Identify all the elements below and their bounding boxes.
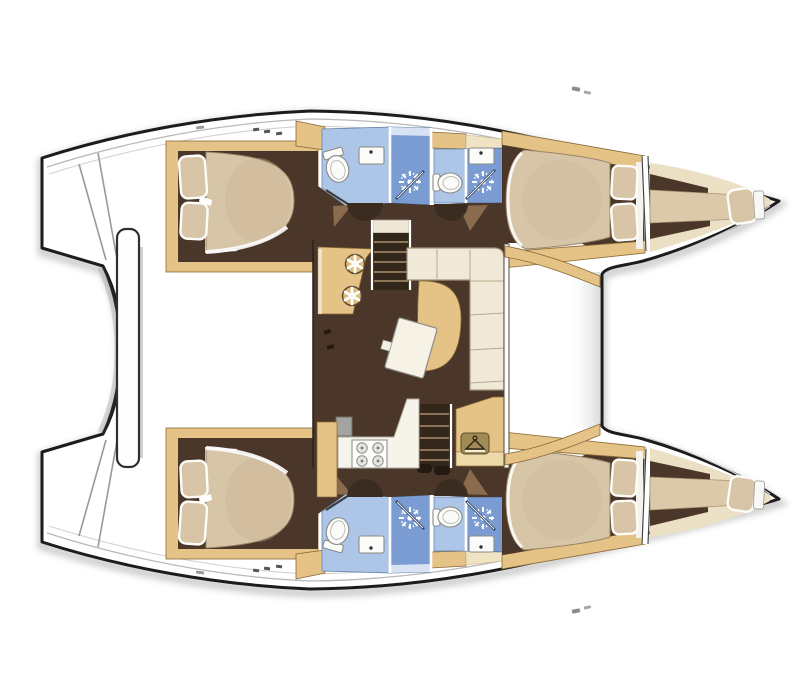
stove-icon	[352, 440, 387, 468]
forward-beam-shade	[566, 272, 600, 428]
wardrobe-bench	[456, 397, 504, 466]
threshold	[434, 466, 450, 475]
davit-bar	[117, 229, 141, 467]
catamaran-floor-plan: Catamaran interior layout floor plan (to…	[0, 0, 800, 700]
galley-side-cabinet	[317, 422, 337, 497]
saloon-forward-wall	[504, 244, 509, 468]
table-leaf	[381, 340, 392, 351]
fridge-icon	[336, 417, 352, 436]
stairs-port-hull	[372, 220, 410, 290]
stairs-starboard-hull	[417, 404, 451, 475]
